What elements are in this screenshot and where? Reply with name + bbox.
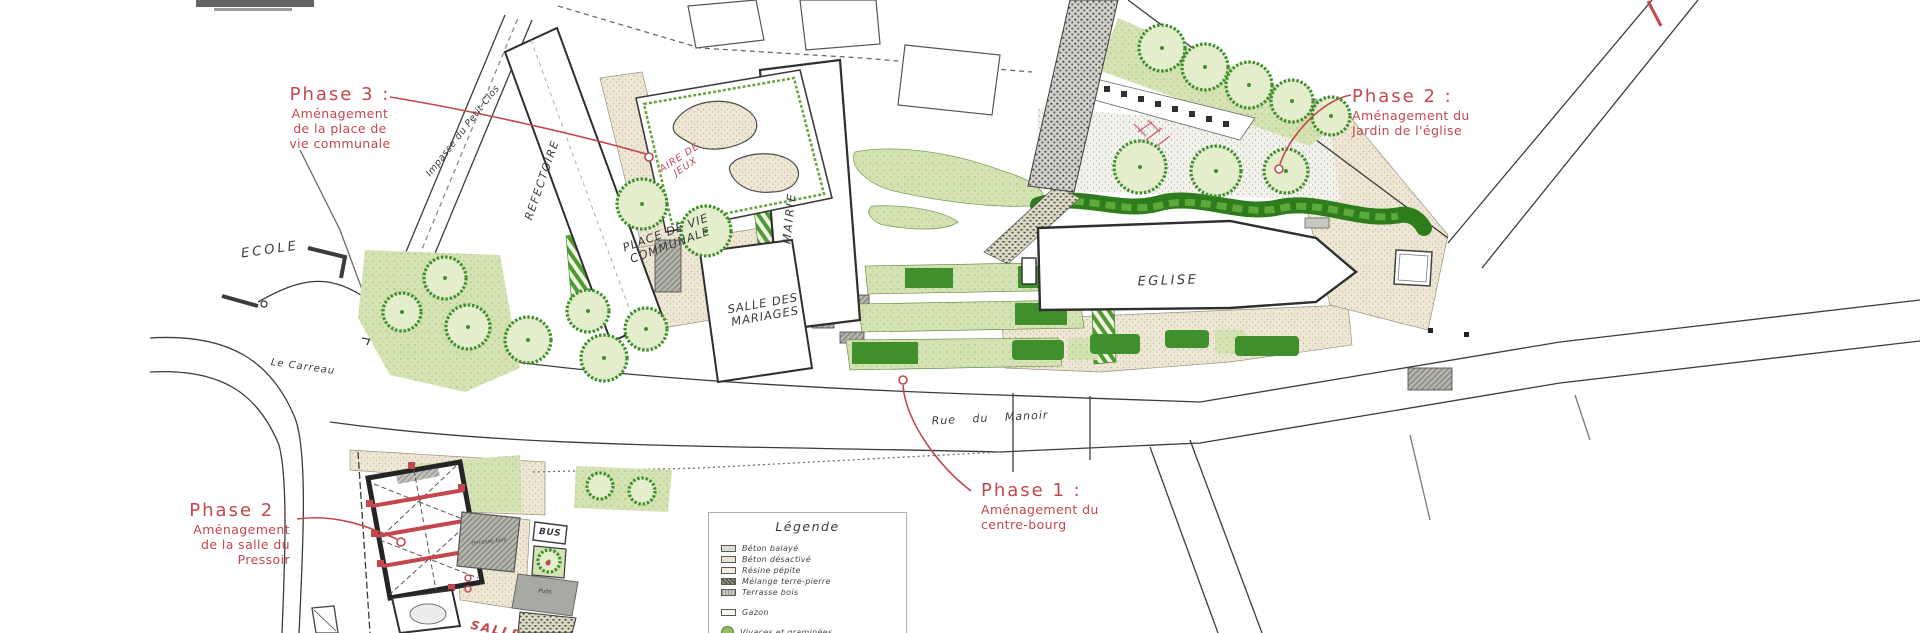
phase2-eglise-title: Phase 2 :: [1352, 86, 1470, 107]
legend-swatch-gazon: [721, 609, 736, 616]
legend-item-label: Mélange terre-pierre: [742, 577, 831, 586]
legend-item-label: Gazon: [742, 608, 769, 617]
phase3-line: vie communale: [270, 137, 410, 152]
legend-item: Terrasse bois: [709, 587, 906, 598]
legend-item: Gazon: [709, 607, 906, 618]
annotation-phase2-pressoir: Phase 2 : Aménagement de la salle du Pre…: [164, 500, 290, 567]
legend-item: Résine pépite: [709, 565, 906, 576]
label-bus: BUS: [539, 527, 562, 539]
legend-swatch-resine-pepite: [721, 567, 736, 574]
phase2-eglise-line: Aménagement du: [1352, 109, 1470, 124]
phase1-line: Aménagement du: [981, 503, 1099, 518]
legend-item-label: Terrasse bois: [742, 588, 798, 597]
phase1-line: centre-bourg: [981, 518, 1099, 533]
legend-swatch-melange-terre-pierre: [721, 578, 736, 585]
legend-item-label: Résine pépite: [742, 566, 801, 575]
legend-item: Béton désactivé: [709, 554, 906, 565]
annotation-phase3: Phase 3 : Aménagement de la place de vie…: [270, 84, 410, 151]
legend-item: Mélange terre-pierre: [709, 576, 906, 587]
legend-item: Vivaces et graminées: [709, 627, 906, 633]
legend-swatch-vivaces-graminees: [721, 626, 734, 633]
building-pressoir: [312, 462, 482, 633]
legend-box: Légende Béton balayé Béton désactivé Rés…: [708, 512, 907, 633]
label-puits: Puits: [538, 589, 552, 596]
annotation-phase2-eglise: Phase 2 : Aménagement du Jardin de l'égl…: [1352, 86, 1470, 139]
legend-title: Légende: [709, 519, 906, 534]
phase2-pressoir-line: de la salle du: [164, 538, 290, 553]
cutoff-fragment: [196, 0, 314, 11]
building-eglise: [1038, 221, 1356, 310]
phase2-pressoir-line: Aménagement: [164, 523, 290, 538]
phase2-pressoir-line: Pressoir: [164, 553, 290, 568]
annotation-phase1: Phase 1 : Aménagement du centre-bourg: [981, 480, 1099, 533]
label-eglise: EGLISE: [1137, 272, 1198, 289]
phase2-pressoir-title: Phase 2 :: [164, 500, 290, 521]
legend-swatch-terrasse-bois: [721, 589, 736, 596]
site-plan: ECOLE REFECTOIRE MAIRIE SALLE DES MARIAG…: [0, 0, 1920, 633]
phase1-title: Phase 1 :: [981, 480, 1099, 501]
legend-item-label: Vivaces et graminées: [740, 628, 832, 633]
legend-item-label: Béton balayé: [742, 544, 798, 553]
phase3-line: Aménagement: [270, 107, 410, 122]
legend-item-label: Béton désactivé: [742, 555, 811, 564]
phase2-eglise-line: Jardin de l'église: [1352, 124, 1470, 139]
phase3-title: Phase 3 :: [270, 84, 410, 105]
legend-item: Béton balayé: [709, 543, 906, 554]
legend-swatch-beton-desactive: [721, 556, 736, 563]
legend-swatch-beton-balaye: [721, 545, 736, 552]
phase3-line: de la place de: [270, 122, 410, 137]
